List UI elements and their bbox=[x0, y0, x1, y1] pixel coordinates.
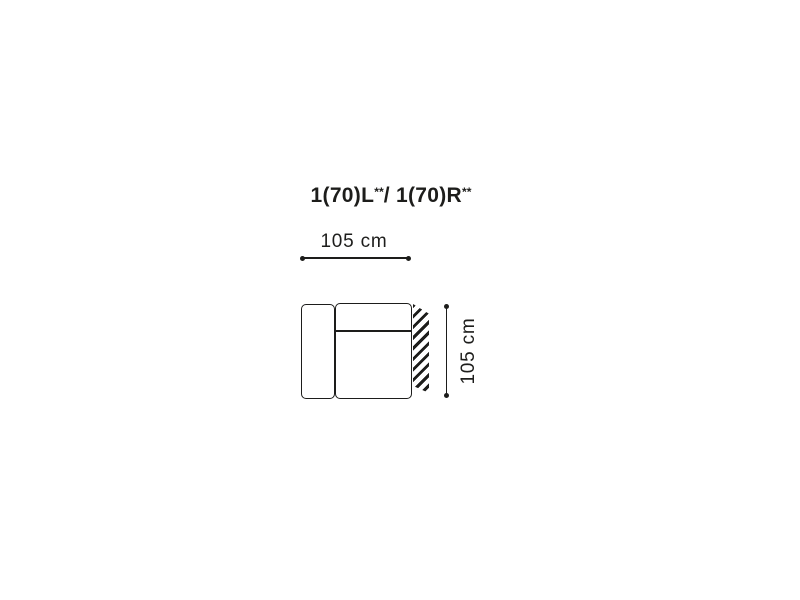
module-dimension-diagram: 1(70)L**/ 1(70)R** 105 cm 105 cm bbox=[0, 0, 800, 600]
sofa-armrest-outline bbox=[301, 304, 335, 399]
height-dimension-label: 105 cm bbox=[458, 317, 480, 384]
dimension-endpoint-dot bbox=[300, 256, 305, 261]
module-title-right-footnote-asterisks: ** bbox=[462, 185, 471, 199]
dimension-endpoint-dot bbox=[406, 256, 411, 261]
sofa-seat-outline bbox=[335, 303, 412, 399]
module-title-right-code: / 1(70)R bbox=[384, 184, 462, 207]
width-dimension-label: 105 cm bbox=[320, 231, 387, 253]
module-title-left-code: 1(70)L bbox=[311, 184, 375, 207]
width-dimension-line bbox=[303, 257, 409, 259]
open-side-hatch bbox=[413, 304, 429, 393]
module-title-left-footnote-asterisks: ** bbox=[374, 185, 383, 199]
sofa-backrest-line bbox=[336, 330, 411, 332]
module-title: 1(70)L**/ 1(70)R** bbox=[311, 184, 472, 208]
dimension-endpoint-dot bbox=[444, 304, 449, 309]
dimension-endpoint-dot bbox=[444, 393, 449, 398]
height-dimension-line bbox=[446, 306, 448, 396]
